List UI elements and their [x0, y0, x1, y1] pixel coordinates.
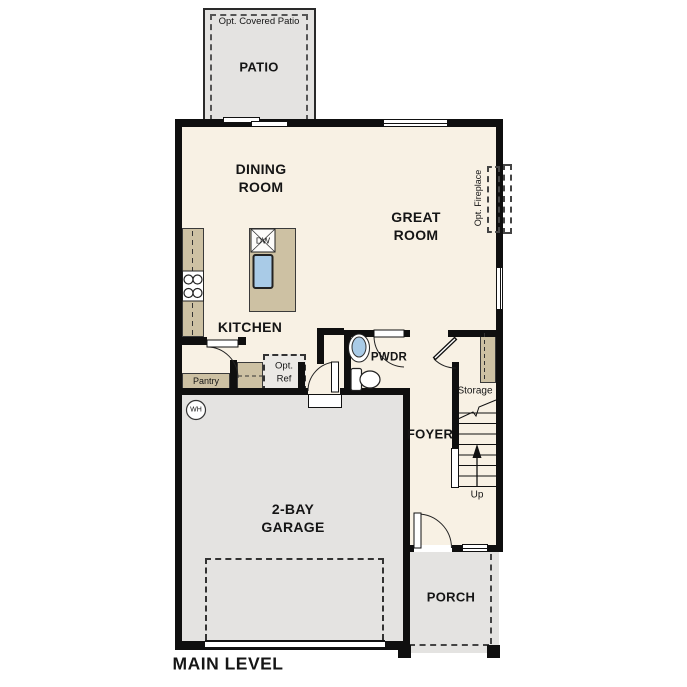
wall-powder-top-right	[404, 330, 410, 337]
floor-plan: Opt. Covered Patio PATIO DINING ROOM GRE…	[0, 0, 687, 687]
wall-optref-right	[298, 362, 305, 390]
great-room-window-top	[383, 119, 448, 127]
wall-powder-top-left	[344, 330, 374, 337]
up-label: Up	[471, 489, 484, 502]
stair-half-wall	[451, 448, 459, 488]
garage-label: 2-BAY GARAGE	[261, 500, 324, 536]
wall-powder-left	[344, 330, 351, 395]
wall-garage-top-left	[175, 388, 308, 395]
garage-step-landing	[308, 394, 342, 408]
wall-kitchen-stub	[175, 337, 207, 345]
foyer-label: FOYER	[407, 427, 453, 444]
wall-mudhall-horiz	[317, 328, 344, 335]
wall-powder-bottom	[344, 388, 410, 395]
wall-pantry-stub	[238, 337, 246, 345]
wall-left	[175, 119, 182, 649]
wall-pantry-divider	[230, 360, 237, 390]
patio-slider-panel-inner	[251, 121, 288, 127]
wall-stair-top	[448, 330, 503, 337]
porch-edge-dashed-bottom	[409, 644, 489, 646]
foyer-window	[462, 544, 488, 552]
great-room-window-right	[496, 267, 503, 310]
opt-fireplace-label: Opt. Fireplace	[473, 170, 485, 227]
opt-ref-label: Opt. Ref	[275, 360, 293, 387]
porch-label: PORCH	[427, 590, 475, 607]
entry-door-opening	[414, 545, 452, 552]
water-heater-label: WH	[190, 405, 202, 414]
kitchen-label: KITCHEN	[218, 318, 282, 336]
great-room-label: GREAT ROOM	[391, 208, 440, 244]
garage-door	[205, 640, 385, 649]
garage-door-clearance-outline	[205, 558, 384, 640]
opt-fireplace-outline-outer	[503, 164, 512, 234]
patio-label: PATIO	[239, 60, 278, 77]
main-level-label: MAIN LEVEL	[173, 653, 284, 676]
dishwasher-label: DW	[256, 235, 270, 246]
opt-fireplace-outline-inner	[487, 166, 500, 233]
powder-label: PWDR	[371, 351, 407, 366]
opt-covered-patio-label: Opt. Covered Patio	[219, 16, 300, 28]
pantry-label: Pantry	[193, 376, 219, 388]
porch-post-left	[398, 645, 411, 658]
storage-shelf	[480, 332, 496, 383]
porch-post-right	[487, 645, 500, 658]
storage-label: Storage	[457, 385, 492, 398]
kitchen-counter	[182, 228, 204, 337]
dining-room-label: DINING ROOM	[236, 160, 287, 196]
mudroom-counter	[237, 362, 263, 390]
porch-edge-dashed-right	[490, 554, 492, 644]
